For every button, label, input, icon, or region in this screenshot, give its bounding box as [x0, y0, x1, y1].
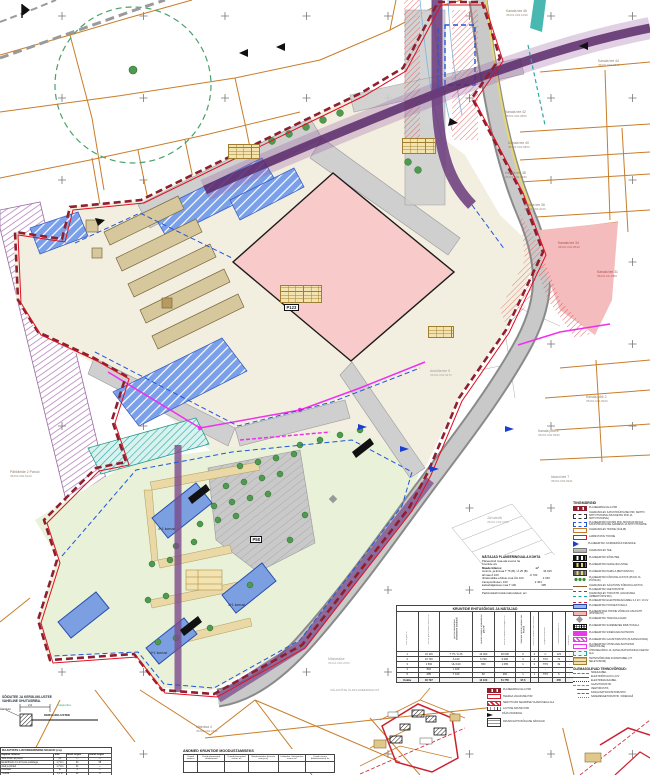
legend-entry: PLANEERITAV KRUNDI PIIR, MOODUSTATAVA KA… — [573, 522, 650, 527]
legend-symbol-icon — [573, 562, 587, 568]
column-header: Parkimiskohtade arv — [552, 612, 565, 652]
legend-entry: PLANEERITAV TRAFOALAJAAM — [573, 617, 650, 622]
building-rights-table: KRUNTIDE EHITUSÕIGUS JA NÄITAJAD Krundi … — [396, 605, 574, 683]
legend-entry: PLANEERITAV SIDEKANALISATSIOON — [573, 631, 650, 636]
column-header: Krundi planeeritud sihtotstarved — [198, 754, 225, 761]
legend-symbol-icon — [573, 514, 587, 519]
parcel-label: Kanala tee 40 35201:004:0860 — [508, 142, 530, 149]
line-style-icon — [573, 685, 589, 686]
legend-title: TINGMÄRGID — [573, 501, 650, 505]
demolition-table: RAJATISTE LIKVIDEERIMISE MAHUD (ca) Raja… — [0, 747, 112, 775]
parking-total: Parkimiskohti kokku lahendatud, arv31 — [482, 589, 576, 595]
legend-entry: PLANEERITAV HOONESTUSALA — [573, 604, 650, 609]
legend-symbol-icon — [573, 506, 587, 511]
path-label: KERGLIIKLUSTEE — [44, 713, 70, 717]
boundary-legend: PLANEERINGUALA PIIR TEEMAA VAJADUSE PIIR… — [487, 688, 577, 728]
legend-symbol-icon — [573, 651, 587, 656]
legend-symbol-icon — [487, 718, 501, 727]
legend-entry: ÜHISVEEVÄRGI JA -KANALISATSIOONIGA KAETA… — [573, 650, 650, 655]
legend-symbol-icon — [573, 602, 587, 603]
legend-entry: PLANEERINGUALA PIIR — [487, 688, 577, 693]
legend-entry: OLEMASOLEV HOONE (SÄILIB) — [573, 528, 650, 533]
inset-caption: VÄLJAVÕTE ÜLDPLANEERINGUST — [330, 688, 379, 692]
parcel-label: Kanala tee 44 35201:004:0870 — [598, 60, 620, 67]
legend-symbol-icon — [573, 541, 579, 547]
plot-formation-table: ANDMED KRUNTIDE MOODUSTAMISEKS Krundi aa… — [183, 749, 335, 773]
legend-entry: PLANEERITAV SÕIDUTEE — [573, 555, 650, 561]
utility-line-entry: ELEKTRIMAAKAABEL — [573, 680, 650, 683]
line-style-icon — [573, 677, 589, 678]
parcel-label: Kanala tee 31 35201:06:1350 — [597, 271, 618, 278]
green-strip-label: haljasriba — [58, 703, 71, 707]
legend-symbol-icon — [487, 713, 493, 717]
legend-entry: OLEMASOLEV KATASTRIÜKSUSE PIIR, KEHTIV S… — [573, 512, 650, 520]
legend-symbol-icon — [573, 577, 587, 583]
legend-symbol-icon — [487, 701, 501, 706]
area-label: P58 — [250, 536, 262, 543]
legend-symbol-icon — [573, 611, 587, 616]
area-label: 4+1 korrust — [150, 651, 167, 655]
parcel-label: Kanala põik 4 35201:004:0930 — [538, 430, 560, 437]
parcel-label: Iduoru tee 7 35201:004:0941 — [551, 476, 573, 483]
land-balance-row: kaitsehaljastuse maa T 1003951 — [482, 584, 576, 587]
legend-symbol-icon — [573, 596, 587, 597]
utility-callout — [228, 144, 260, 159]
parcel-label: Kanala tee 42 35201:004:0850 — [505, 111, 527, 118]
legend-entry: AJUTISE KRUNDI PIIR — [487, 707, 577, 711]
legend-entry: PLANEERITAV KERGLIIKLUSTEE — [573, 562, 650, 568]
legend-symbol-icon — [573, 535, 587, 540]
line-style-icon — [573, 673, 589, 674]
legend-entry: OLEMASOLEV TEE — [573, 548, 650, 553]
legend-symbol-icon — [573, 528, 587, 533]
column-header: Tulepüsivusklass — [538, 612, 552, 652]
parcel-label: Jüri alevik 35201:004:0150 — [487, 517, 509, 524]
legend-symbol-icon — [487, 694, 501, 699]
area-label: 4+1 korrust — [228, 603, 245, 607]
legend-symbol-icon — [573, 586, 587, 587]
parcel-label: Kanala põik 2 35201:004:0920 — [586, 396, 608, 403]
kerb-label: Äärekivi — [0, 707, 11, 711]
legend-entry: PLANEERITAV ÜHISKANALISATSIOON (ISEVOOLN… — [573, 644, 650, 649]
legend: TINGMÄRGID PLANEERINGUALA PIIR OLEMASOLE… — [573, 501, 650, 700]
utility-line-entry: GAASITORUSTIK — [573, 684, 650, 687]
line-style-icon — [573, 681, 589, 682]
legend-entry: PLANEERITAV ELEKTRIMAAKAABEL 0,4 kV / 10… — [573, 600, 650, 603]
parcel-label: Kanala tee 36 35201:004:2020 — [524, 204, 546, 211]
legend-entry: TEHNOVÕRKUDE KOONDTABEL (VT SELETUSKIRI) — [573, 657, 650, 665]
legend-symbol-icon — [573, 624, 587, 630]
legend-entry: PLANEERITAV KÕRGHALJASTUS (PUUD JA PÕÕSA… — [573, 577, 650, 583]
legend-entry: PLANEERINGUALA PIIR — [573, 506, 650, 511]
utility-callout — [428, 326, 454, 338]
legend-entry: PLANEERITAV SADEMEVEE IMMUTUSALA — [573, 624, 650, 630]
area-label: P123 — [284, 304, 299, 311]
column-header: Krundi planeeritud suurus m² — [418, 612, 440, 652]
legend-symbol-icon — [487, 688, 501, 693]
parcel-label: Mäeotsa 4 35201:004:0110 — [196, 726, 217, 733]
safety-strip-diagram-labels: 2,0 Äärekivi KERGLIIKLUSTEE haljasriba — [0, 703, 115, 747]
utility-callout — [402, 138, 436, 154]
legend-symbol-icon — [573, 591, 587, 592]
legend-symbol-icon — [487, 707, 501, 711]
column-header: Liidetakse / lahutatakse suurus m² — [278, 754, 306, 761]
legend-entry: KRUNDI EHITUSÕIGUSE NÄITAJAD — [487, 718, 577, 727]
legend-entry: TEEMAA VAJADUSE PIIR — [487, 694, 577, 699]
legend-entry: LAMMUTATAV HOONE — [573, 535, 650, 540]
parcel-label: Pähklimäe 2 Parool 35201:004:0120 — [10, 471, 39, 478]
area-label: 4+1 korrust — [158, 527, 175, 531]
parcel-label: Mäepealse 35201:004:2050 — [328, 658, 350, 665]
column-header: Hoonete suurim lubatud arv krundil — [516, 612, 531, 652]
parcel-label: Kanala tee 34 35201:004:0540 — [558, 242, 580, 249]
utility-callout — [280, 285, 322, 303]
column-header: Suurim lubatud brutopind m² — [494, 612, 516, 652]
legend-entry: PLANEERITAVA HOONE VÕIMALIK ASUKOHT (PÕH… — [573, 611, 650, 616]
column-header: Suurim lubatud ehitisealune pind m² — [473, 612, 495, 652]
column-header: Suurim lubatud korruselisus — [530, 612, 538, 652]
column-header: Krundi pos nr — [397, 612, 419, 652]
legend-entry: SERVITUUDI SEADMISE VAJADUSEGA ALA — [487, 701, 577, 706]
column-header: Moodustatakse (kinnistu nimi ja nr) — [249, 754, 278, 761]
parcel-label: Aruküla tee 5 35201:004:0273 — [430, 370, 452, 377]
legend-entry: OLEMASOLEV TORUSTIK (VAJADUSEL ÜMBERTÕST… — [573, 593, 650, 598]
parcel-label: Kanala tee 38 35201:004:1580 — [505, 172, 527, 179]
indicators-block: NÄITAJAD PLANEERINGUALA KOHTA Planeeritu… — [482, 555, 576, 595]
column-header: Krundi planeeritud suurus m² — [224, 754, 248, 761]
legend-symbol-icon — [573, 637, 587, 642]
legend-symbol-icon — [573, 548, 587, 553]
table-row — [184, 761, 335, 772]
column-header: Osade suurus (lähtekinnistust) ha — [306, 754, 335, 761]
detail-plan-sheet: Kanala tee 46 35201:004:1090 Kanala tee … — [0, 0, 650, 775]
legend-entry: PÄÄS KRUNDILE — [487, 713, 577, 717]
legend-symbol-icon — [576, 616, 583, 623]
legend-symbol-icon — [573, 644, 587, 649]
utilities-legend-title: OLEMASOLEVAD TEHNOVÕRGUD: — [573, 667, 650, 671]
legend-symbol-icon — [573, 604, 587, 609]
total-row: Kokku36 79713 10051 75597,6365 — [397, 677, 574, 682]
dim-label: 2,0 — [28, 703, 32, 707]
column-header: Krundi kasutamise sihtotstarve (osakaal) — [440, 612, 473, 652]
legend-symbol-icon — [573, 555, 587, 561]
legend-entry: OLEMASOLEV SÄILITATAV KÕRGHALJASTUS — [573, 584, 650, 587]
legend-entry: PLANEERITAV PARKLA (BETOONKIVI) — [573, 570, 650, 576]
legend-entry: PLANEERITAV JUURDEPÄÄS KRUNDILE — [573, 541, 650, 547]
legend-symbol-icon — [573, 570, 587, 576]
column-header: Krundi aadress — [184, 754, 198, 761]
legend-symbol-icon — [573, 522, 587, 527]
legend-symbol-icon — [573, 657, 587, 665]
utility-line-entry: SADEMEVEETORUSTIK / DRENAAŽ — [573, 696, 650, 699]
legend-symbol-icon — [573, 631, 587, 636]
parcel-label: Kanala tee 46 35201:004:1090 — [506, 10, 528, 17]
legend-entry: PLANEERITAV GAASITORUSTIK (B-KATEGOORIA) — [573, 637, 650, 642]
